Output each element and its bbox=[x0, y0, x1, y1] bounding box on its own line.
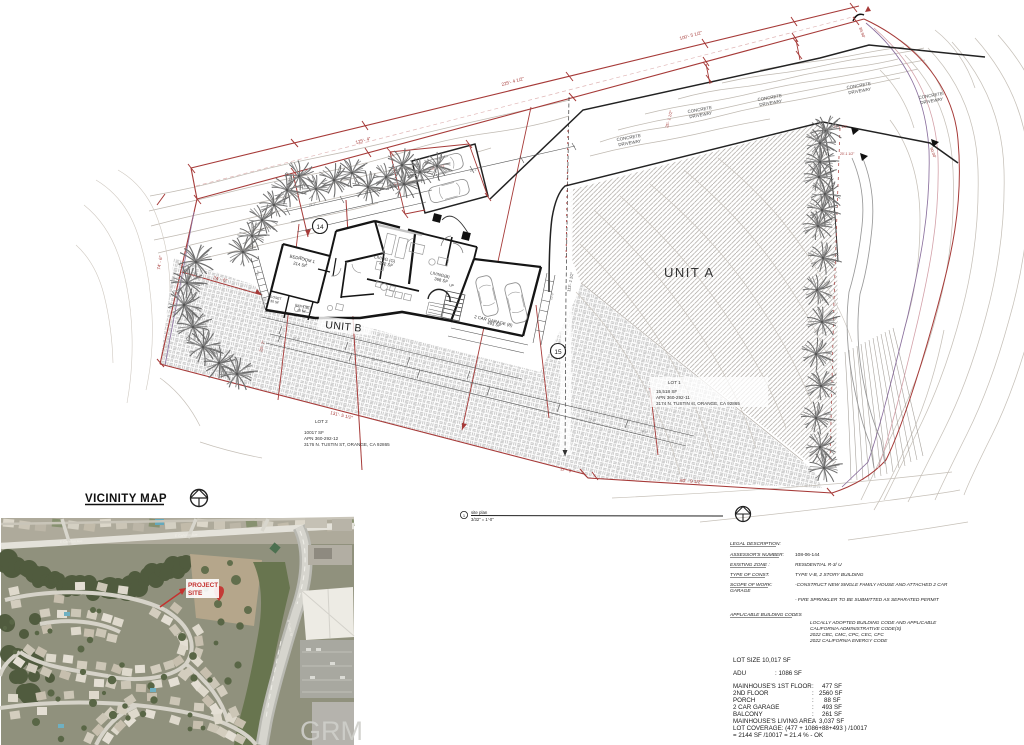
svg-text::: : bbox=[812, 704, 814, 711]
svg-text:-CONSTRUCT NEW SINGLE FAMILY H: -CONSTRUCT NEW SINGLE FAMILY HOUSE AND A… bbox=[795, 582, 948, 588]
svg-text:ADU: ADU bbox=[733, 670, 746, 677]
svg-text:PORCH: PORCH bbox=[733, 697, 755, 704]
svg-text:2 CAR GARAGE: 2 CAR GARAGE bbox=[733, 704, 779, 711]
svg-text:15,518 SF: 15,518 SF bbox=[656, 389, 677, 394]
svg-text:MAINHOUSE'S LIVING AREA: MAINHOUSE'S LIVING AREA bbox=[733, 718, 817, 725]
svg-text:LOT 2: LOT 2 bbox=[315, 419, 328, 424]
svg-text::: : bbox=[812, 718, 814, 725]
svg-text:10017 SF: 10017 SF bbox=[304, 430, 324, 435]
svg-text:CALIFORNIA ADMINISTRATIVE CODE: CALIFORNIA ADMINISTRATIVE CODE(S) bbox=[810, 626, 902, 632]
svg-text:LEGAL DESCRIPTION:: LEGAL DESCRIPTION: bbox=[730, 541, 781, 547]
svg-text:477 SF: 477 SF bbox=[822, 683, 842, 690]
svg-text:EXISTING ZONE :: EXISTING ZONE : bbox=[730, 562, 770, 568]
svg-text::: : bbox=[812, 697, 814, 704]
svg-text:3174 N. TUSTIN st, ORANGE, CA: 3174 N. TUSTIN st, ORANGE, CA 92865 bbox=[656, 401, 740, 406]
svg-text:LOT SIZE 10,017 SF: LOT SIZE 10,017 SF bbox=[733, 657, 791, 664]
svg-text:14: 14 bbox=[316, 224, 324, 231]
svg-text:2022 CALIFORNIA ENERGY CODE: 2022 CALIFORNIA ENERGY CODE bbox=[809, 638, 888, 644]
svg-text:GRM: GRM bbox=[300, 716, 363, 745]
svg-text:3/32" = 1'-0": 3/32" = 1'-0" bbox=[471, 517, 494, 522]
svg-text:: 1086 SF: : 1086 SF bbox=[775, 670, 802, 677]
svg-text:261 SF: 261 SF bbox=[822, 711, 842, 718]
svg-text:ASSESSOR'S NUMBER:: ASSESSOR'S NUMBER: bbox=[729, 552, 785, 558]
svg-text:SITE: SITE bbox=[188, 590, 203, 597]
svg-text::: : bbox=[812, 711, 814, 718]
svg-text:MAINHOUSE'S 1ST FLOOR: MAINHOUSE'S 1ST FLOOR bbox=[733, 683, 812, 690]
svg-text:3,037 SF: 3,037 SF bbox=[819, 718, 844, 725]
svg-text:SCOPE OF WORK:: SCOPE OF WORK: bbox=[730, 582, 773, 588]
svg-text:15: 15 bbox=[554, 349, 562, 356]
svg-text:- FIRE SPRINKLER TO BE SUBMITT: - FIRE SPRINKLER TO BE SUBMITTED AS SEPA… bbox=[795, 597, 940, 603]
svg-text:2ND FLOOR: 2ND FLOOR bbox=[733, 690, 769, 697]
svg-text:LOCALLY ADOPTED BUILDING CODE: LOCALLY ADOPTED BUILDING CODE AND APPLIC… bbox=[810, 620, 937, 626]
svg-text:VICINITY MAP: VICINITY MAP bbox=[85, 493, 167, 505]
svg-text::: : bbox=[812, 683, 814, 690]
svg-text:88 SF: 88 SF bbox=[824, 697, 841, 704]
svg-text:GARAGE: GARAGE bbox=[730, 588, 751, 594]
svg-text:LOT 1: LOT 1 bbox=[668, 380, 681, 385]
svg-text:2022 CBC, CMC, CPC, CEC, CFC: 2022 CBC, CMC, CPC, CEC, CFC bbox=[809, 632, 884, 638]
svg-text:E Carleton Ave: E Carleton Ave bbox=[60, 539, 83, 544]
svg-text:2560 SF: 2560 SF bbox=[819, 690, 843, 697]
svg-text:493 SF: 493 SF bbox=[822, 704, 842, 711]
svg-text:20'-1 1/2": 20'-1 1/2" bbox=[840, 152, 855, 156]
svg-text::: : bbox=[812, 690, 814, 697]
svg-text:APPLICABLE BUILDING CODES: APPLICABLE BUILDING CODES bbox=[729, 612, 803, 618]
svg-text:LOT COVERAGE: (477 + 1086+88+4: LOT COVERAGE: (477 + 1086+88+493 ) /1001… bbox=[733, 725, 868, 732]
svg-text:APN 360-292-11: APN 360-292-11 bbox=[656, 395, 690, 400]
svg-text:site plan: site plan bbox=[471, 510, 488, 515]
svg-text:UNIT A: UNIT A bbox=[664, 265, 715, 280]
svg-text:BALCONY: BALCONY bbox=[733, 711, 763, 718]
svg-text:= 2144 SF /10017 = 21.4 % - O: = 2144 SF /10017 = 21.4 % - OK bbox=[733, 732, 824, 739]
svg-text:PROJECT: PROJECT bbox=[188, 582, 218, 589]
svg-text:RESIDENTIAL R-3/ U: RESIDENTIAL R-3/ U bbox=[795, 562, 842, 568]
svg-text:3176 N. TUSTIN ST, ORANGE, CA: 3176 N. TUSTIN ST, ORANGE, CA 92865 bbox=[304, 442, 390, 447]
svg-text:TYPE OF CONST.: TYPE OF CONST. bbox=[730, 572, 770, 578]
svg-text:APN 360-292-12: APN 360-292-12 bbox=[304, 436, 339, 441]
svg-text:108-06-144: 108-06-144 bbox=[795, 552, 820, 558]
svg-text:TYPE V-B, 2 STORY BUILDING: TYPE V-B, 2 STORY BUILDING bbox=[795, 572, 864, 578]
